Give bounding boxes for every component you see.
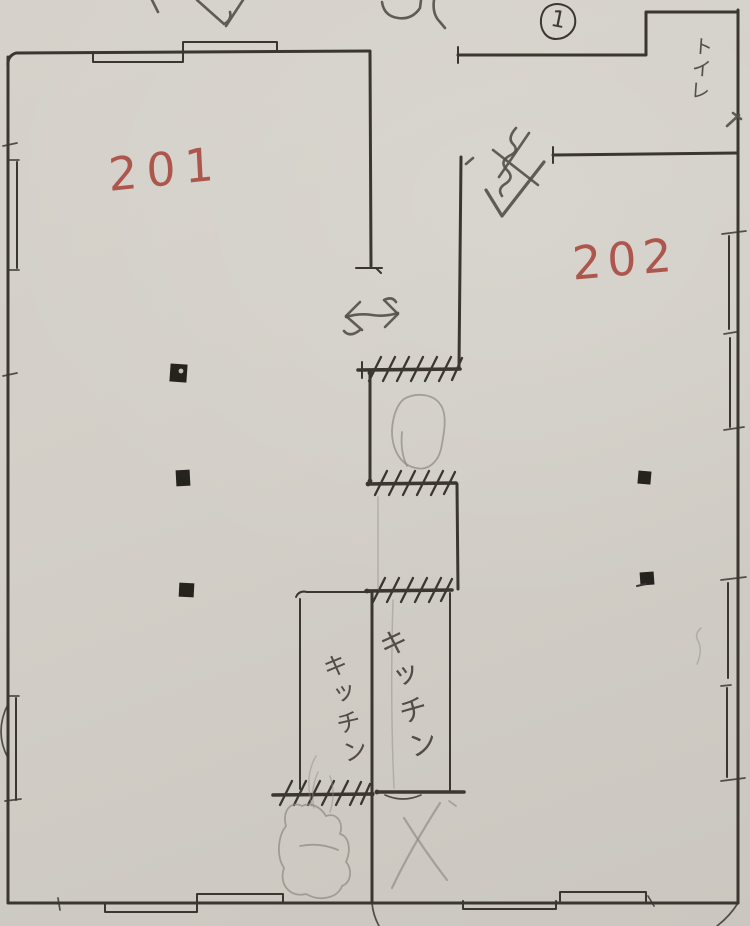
window-symbol-left <box>1 143 21 801</box>
top-edge-arrow-sketches <box>152 0 445 28</box>
partition-wall-center <box>356 52 382 273</box>
pencil-scribble-bottom-left <box>279 756 350 898</box>
pencil-x-mark <box>392 801 456 888</box>
pencil-blob-sketch <box>392 395 445 469</box>
hatched-wall-2 <box>366 471 458 589</box>
double-arrow-icon <box>344 298 398 334</box>
window-symbol-bottom <box>58 892 738 926</box>
pillar <box>179 583 195 598</box>
pillar <box>176 470 191 487</box>
pencil-squiggle <box>697 628 701 664</box>
hatched-wall-4 <box>273 781 375 805</box>
paper-curl-left <box>372 903 379 926</box>
floor-plan-drawing <box>0 0 750 926</box>
paper-curl-right <box>717 903 738 926</box>
floor-plan-photo: 201 202 キッチン キッチン トイレ 1 <box>0 0 750 926</box>
shaft-wall <box>368 371 373 484</box>
pillar <box>637 470 651 484</box>
toilet-label: トイレ <box>684 35 718 107</box>
window-symbol-right <box>721 113 746 781</box>
hatched-wall-1 <box>358 357 462 381</box>
room-202-label: 202 <box>571 227 679 290</box>
pillar <box>640 572 655 586</box>
down-arrow-sketch <box>466 128 544 216</box>
pillar-symbols <box>169 363 654 597</box>
pillar <box>169 363 187 382</box>
